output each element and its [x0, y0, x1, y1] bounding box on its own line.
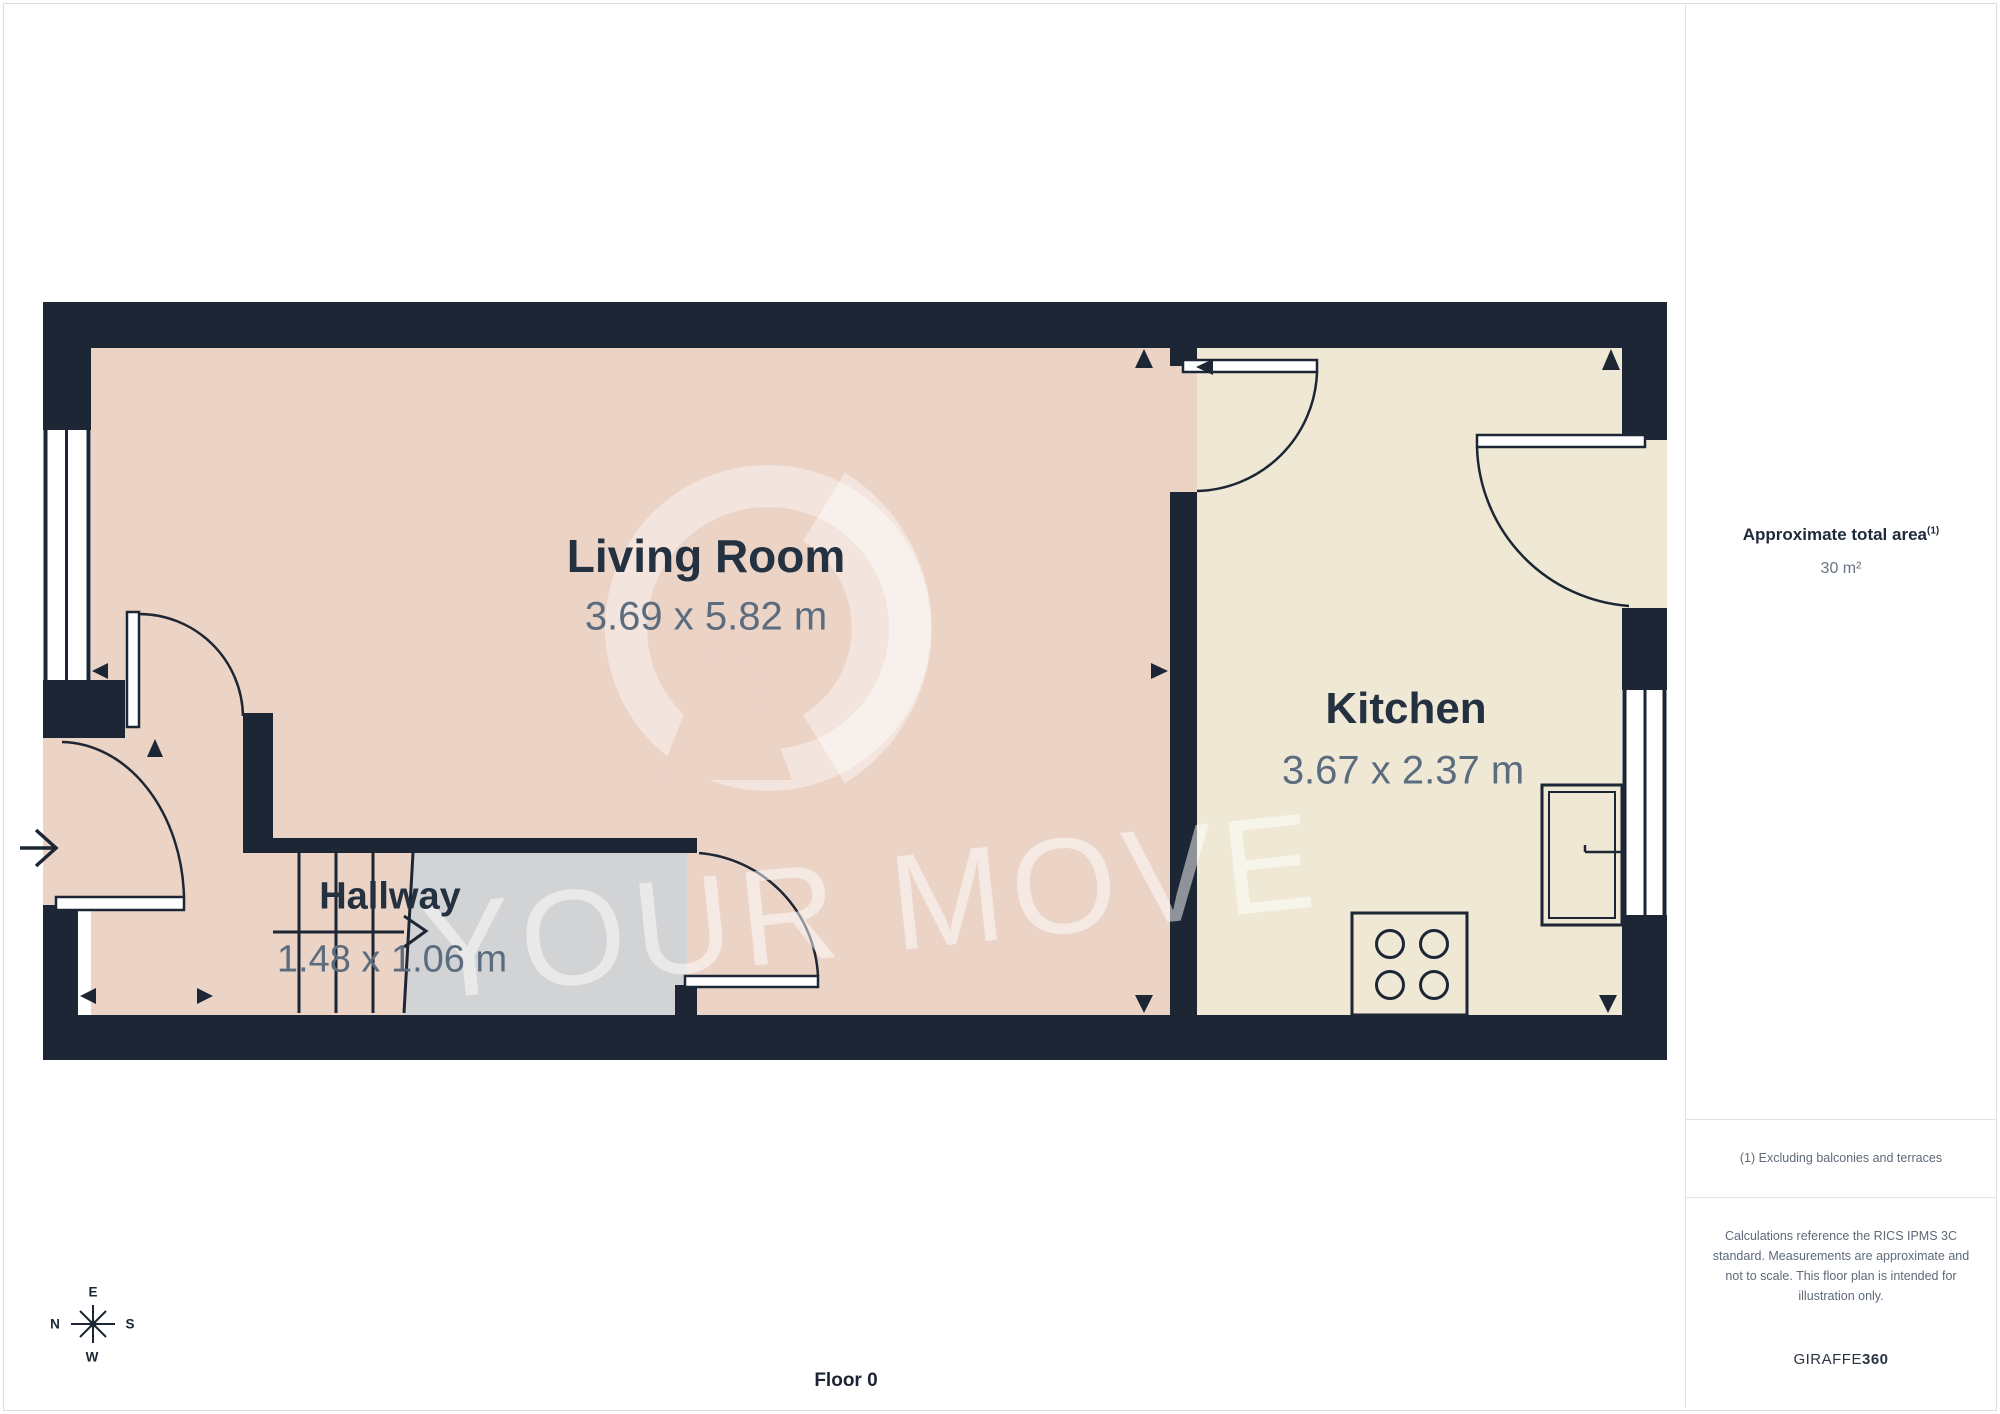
sidebar-footnote: (1) Excluding balconies and terraces — [1686, 1151, 1996, 1165]
room-label-hallway: Hallway — [319, 876, 461, 919]
floorplan-page: YOUR MOVE Living Room 3.69 x 5.82 m Kitc… — [0, 0, 2000, 1414]
floor-label: Floor 0 — [814, 1370, 877, 1392]
room-label-kitchen: Kitchen — [1325, 684, 1486, 734]
total-area-footnote-marker: (1) — [1927, 525, 1939, 536]
sidebar-divider — [1686, 1197, 1996, 1198]
sink — [1542, 785, 1622, 925]
total-area-label: Approximate total area — [1743, 525, 1927, 544]
total-area-title: Approximate total area(1) — [1686, 525, 1996, 545]
compass-north-label: N — [50, 1317, 60, 1332]
room-dims-living-room: 3.69 x 5.82 m — [585, 595, 827, 640]
window-right — [1622, 690, 1667, 915]
brand-suffix: 360 — [1862, 1351, 1889, 1368]
room-label-living-room: Living Room — [567, 529, 846, 583]
sidebar-disclaimer: Calculations reference the RICS IPMS 3C … — [1711, 1226, 1971, 1306]
info-sidebar: Approximate total area(1) 30 m² (1) Excl… — [1685, 4, 1996, 1408]
room-dims-hallway: 1.48 x 1.06 m — [277, 939, 507, 982]
sidebar-divider — [1686, 1119, 1996, 1120]
compass-west-label: W — [86, 1350, 99, 1365]
window-left — [43, 430, 91, 680]
brand-name: GIRAFFE — [1793, 1351, 1862, 1368]
compass-south-label: S — [125, 1317, 134, 1332]
brand-logo: GIRAFFE360 — [1686, 1351, 1996, 1368]
compass-icon — [71, 1305, 115, 1343]
compass-east-label: E — [88, 1285, 97, 1300]
stove — [1352, 913, 1467, 1015]
room-dims-kitchen: 3.67 x 2.37 m — [1282, 749, 1524, 794]
total-area-value: 30 m² — [1686, 560, 1996, 578]
